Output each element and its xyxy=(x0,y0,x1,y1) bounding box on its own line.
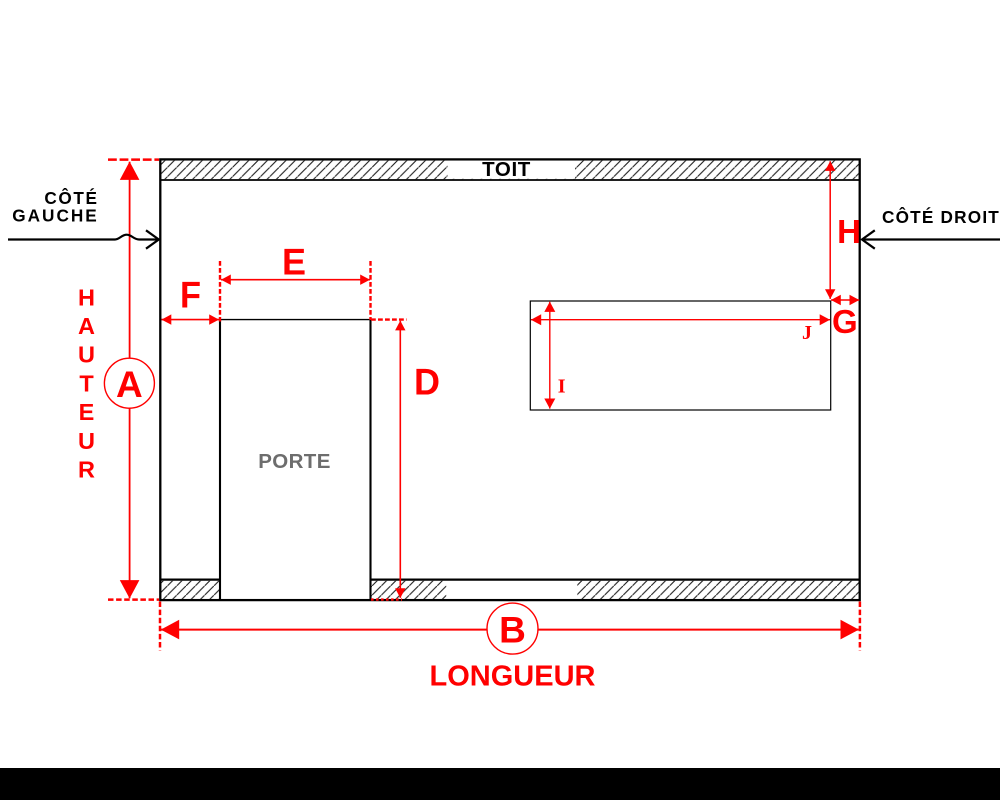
svg-text:F: F xyxy=(180,275,201,316)
svg-text:I: I xyxy=(558,376,566,398)
svg-text:B: B xyxy=(499,609,526,650)
svg-text:PORTE: PORTE xyxy=(258,450,331,473)
svg-text:HAUTEUR: HAUTEUR xyxy=(78,284,95,482)
svg-text:H: H xyxy=(837,213,861,250)
svg-text:D: D xyxy=(414,362,440,403)
svg-text:TOIT: TOIT xyxy=(482,158,531,181)
svg-text:A: A xyxy=(116,364,143,405)
svg-text:E: E xyxy=(282,242,306,283)
svg-text:J: J xyxy=(802,322,812,344)
svg-text:G: G xyxy=(832,303,858,340)
svg-text:LONGUEUR: LONGUEUR xyxy=(430,660,596,692)
svg-text:CÔTÉ DROIT: CÔTÉ DROIT xyxy=(882,207,1000,227)
svg-text:GAUCHE: GAUCHE xyxy=(12,206,98,226)
